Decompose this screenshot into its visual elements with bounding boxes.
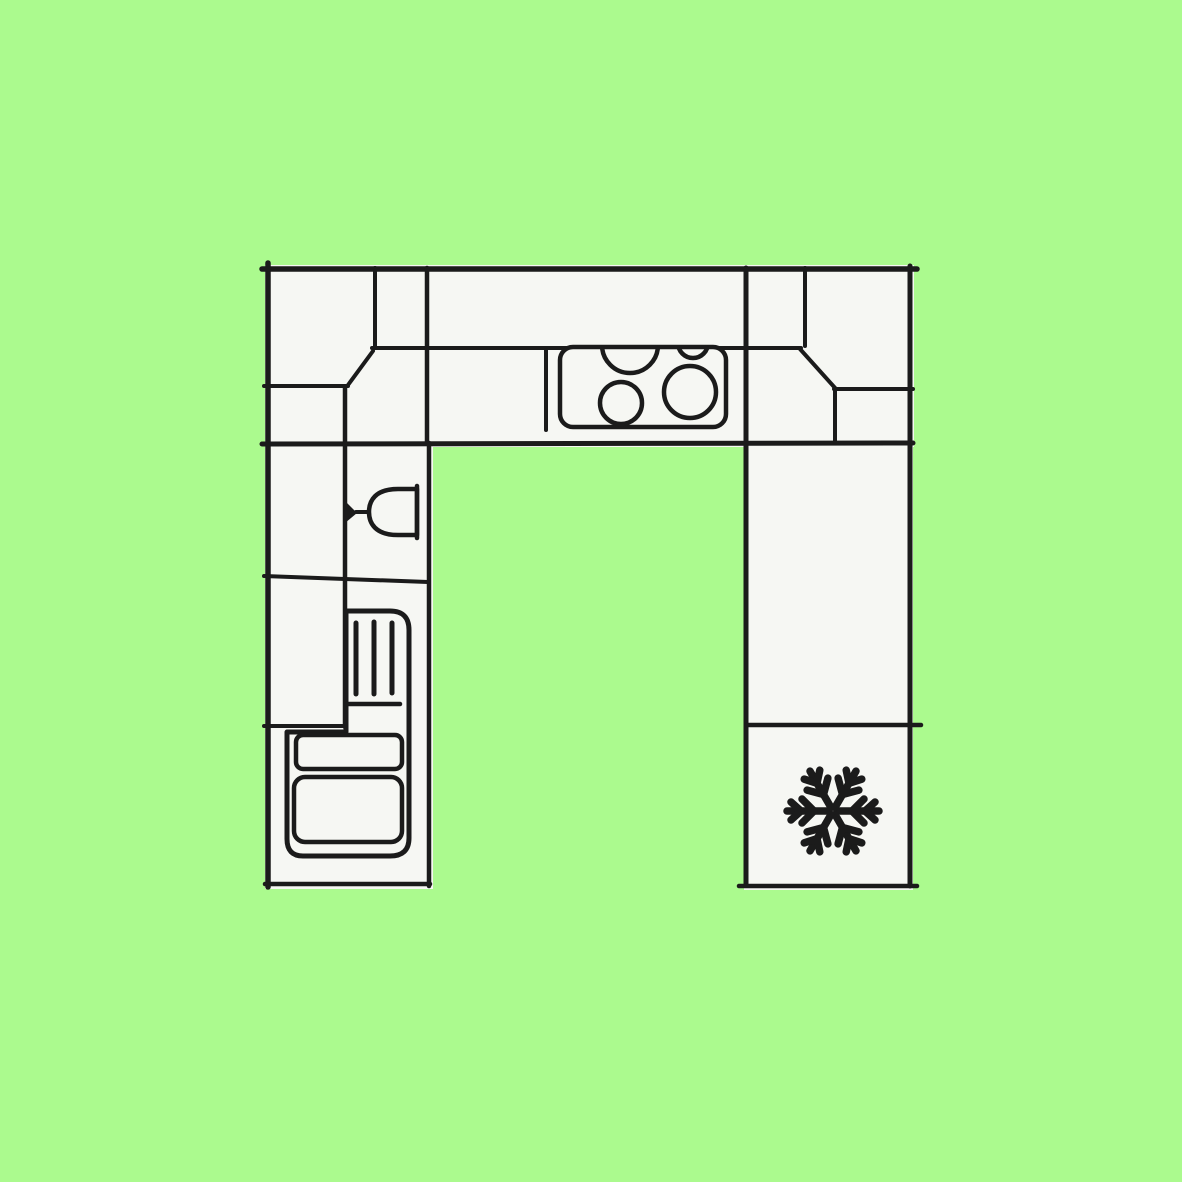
appliance-drawers	[294, 735, 402, 842]
drawer-front	[294, 777, 402, 842]
drawer-front	[296, 735, 402, 769]
wine-glass-bowl	[369, 489, 417, 535]
background	[0, 0, 1182, 1182]
counter-front-edge	[262, 443, 913, 444]
kitchen-floor-plan	[0, 0, 1182, 1182]
